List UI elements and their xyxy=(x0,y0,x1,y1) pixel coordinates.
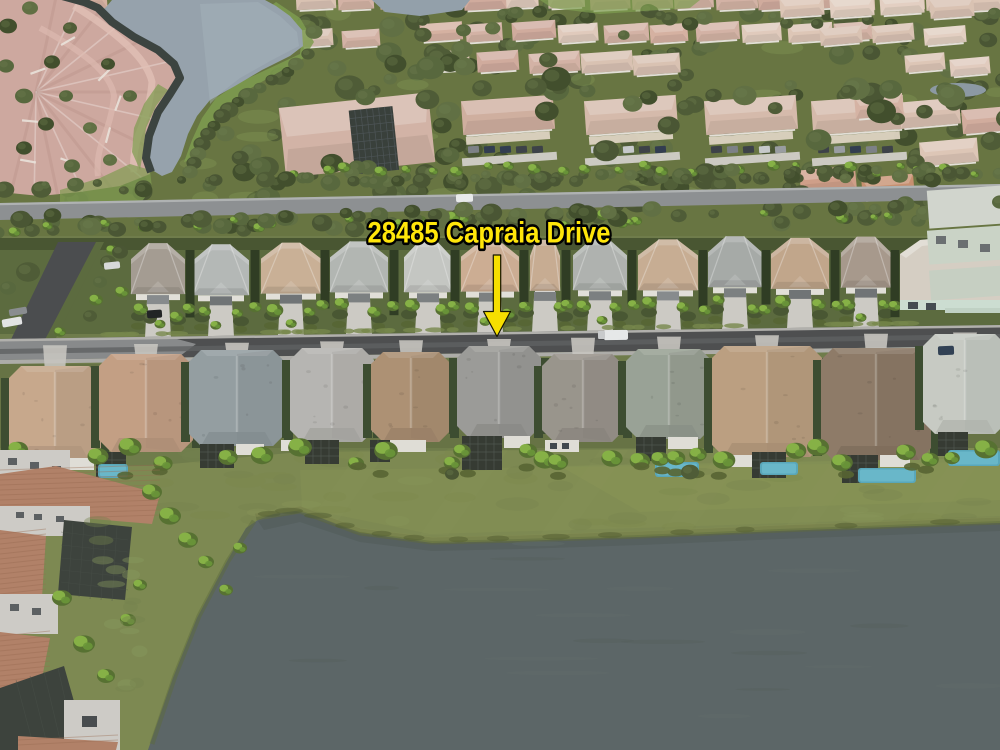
svg-text:28485 Capraia Drive: 28485 Capraia Drive xyxy=(368,217,611,250)
